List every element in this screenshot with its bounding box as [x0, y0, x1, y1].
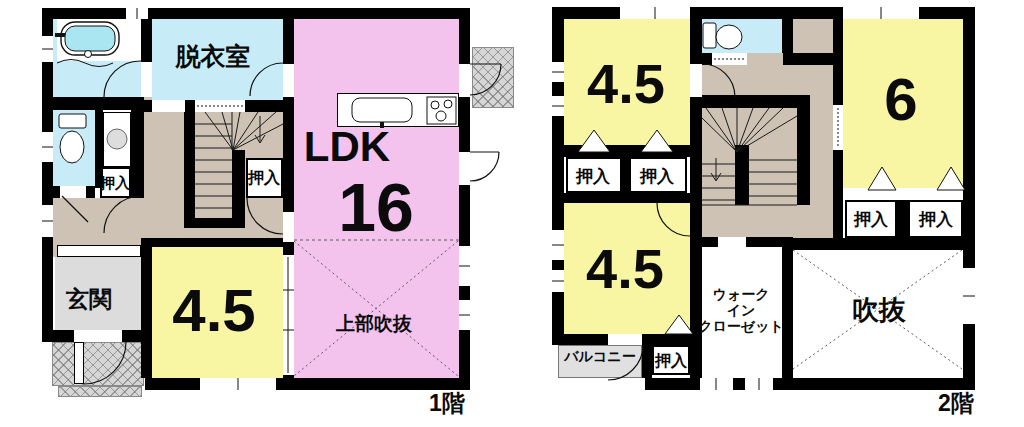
- bathtub-platform: [57, 19, 141, 61]
- floor1-label: 1階: [429, 392, 465, 415]
- door-arc: [470, 152, 499, 181]
- washbasin-counter: [103, 112, 131, 167]
- closet-label: 押入: [919, 211, 953, 228]
- window: [126, 8, 148, 19]
- wic-line1: ウォーク: [698, 286, 784, 302]
- closet-label: 押入: [640, 168, 674, 185]
- window: [552, 270, 564, 292]
- door-opening: [152, 100, 185, 112]
- room-label-void: 吹抜: [852, 297, 906, 324]
- room-label-ldk: LDK: [304, 126, 390, 168]
- room-size-sw-2f: 4.5: [586, 241, 664, 297]
- stair-core-wall: [232, 150, 245, 228]
- door-opening: [60, 186, 86, 198]
- wall: [141, 238, 152, 378]
- wic-line3: クローゼット: [698, 318, 784, 334]
- window: [42, 36, 53, 62]
- door-opening: [718, 237, 746, 247]
- door-opening: [74, 330, 122, 342]
- window: [700, 378, 733, 390]
- door-opening: [459, 152, 470, 185]
- genkan-step: [57, 245, 141, 257]
- window: [552, 230, 564, 260]
- sliding-partition: [283, 255, 294, 375]
- wall: [42, 8, 470, 19]
- closet-track: [843, 188, 963, 200]
- room-size-nw-2f: 4.5: [587, 56, 665, 112]
- window: [459, 246, 470, 286]
- door-opening: [690, 64, 702, 97]
- door-leaf: [74, 342, 84, 384]
- wall: [141, 19, 152, 62]
- wall: [622, 157, 629, 193]
- wall: [793, 238, 963, 250]
- room-size-ne-2f: 6: [884, 70, 917, 130]
- wall: [184, 218, 232, 228]
- wic-line2: イン: [698, 302, 784, 318]
- door-opening: [608, 334, 642, 345]
- toilet-room-1f: [53, 110, 95, 186]
- floor-plan-canvas: 脱衣室 LDK 16 上部吹抜 押入 押入 玄関 4.5 1階 4.5 6 押入…: [0, 0, 1024, 427]
- wall: [556, 145, 690, 157]
- kitchen-counter: [337, 93, 459, 127]
- sliding-door-opening: [712, 53, 747, 65]
- room-label-upper-void: 上部吹抜: [336, 314, 412, 333]
- closet-label: 押入: [100, 175, 130, 190]
- door-opening: [283, 64, 294, 97]
- room-size-ldk: 16: [338, 173, 414, 241]
- door-opening: [747, 53, 783, 65]
- wall: [963, 7, 975, 390]
- entrance-porch-step: [58, 386, 142, 397]
- closet-label: 押入: [248, 170, 280, 186]
- side-porch: [472, 47, 514, 108]
- room-label-entrance: 玄関: [66, 288, 112, 311]
- wall: [131, 97, 144, 198]
- wall: [145, 378, 470, 390]
- room-size-tatami-1f: 4.5: [172, 281, 255, 341]
- window: [42, 205, 53, 237]
- wall: [797, 95, 810, 205]
- window: [459, 300, 470, 330]
- wall: [702, 95, 797, 108]
- window: [963, 268, 975, 324]
- window: [552, 96, 564, 116]
- toilet-room-2f: [702, 19, 782, 53]
- sliding-door-opening: [195, 100, 245, 112]
- room-label-walkin-closet: ウォーク イン クローゼット: [698, 286, 784, 334]
- door-opening: [283, 212, 294, 242]
- wall: [642, 334, 652, 378]
- closet-label: 押入: [854, 211, 888, 228]
- sliding-door-opening: [833, 105, 843, 150]
- wall: [184, 112, 195, 228]
- wall: [556, 193, 690, 203]
- wall: [552, 7, 564, 345]
- window: [745, 378, 773, 390]
- window: [552, 62, 564, 82]
- window: [843, 7, 919, 19]
- closet-label: 押入: [655, 353, 687, 369]
- room-label-dressing: 脱衣室: [176, 44, 251, 69]
- wall: [897, 200, 908, 238]
- window: [200, 378, 276, 390]
- stair-core-wall: [735, 145, 749, 205]
- closet-label: 押入: [576, 168, 610, 185]
- wall: [645, 378, 975, 390]
- room-label-balcony: バルコニー: [564, 349, 635, 363]
- floor2-label: 2階: [938, 392, 974, 415]
- entrance-porch: [52, 342, 144, 386]
- window: [620, 7, 690, 19]
- door-opening: [459, 64, 470, 97]
- wall: [144, 238, 283, 247]
- door-opening: [141, 62, 152, 97]
- window: [42, 132, 53, 162]
